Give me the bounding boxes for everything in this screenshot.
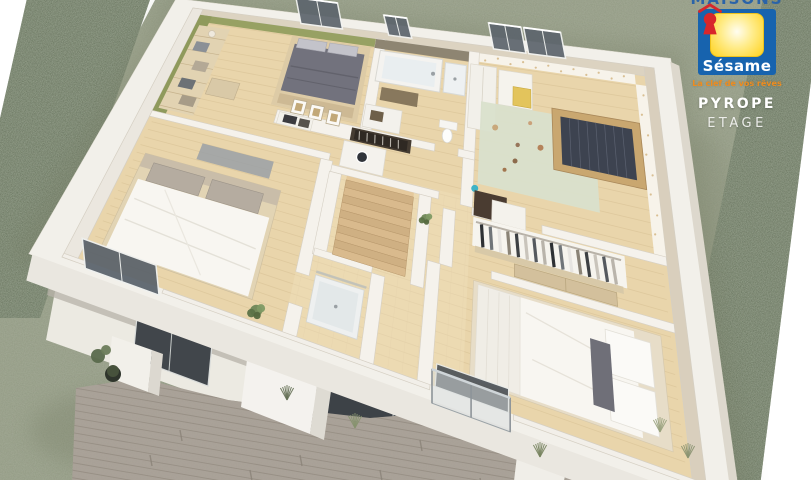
brand-block: MAISONS Sésame La clef de vos rêves PYRO… bbox=[684, 0, 790, 131]
project-name: PYROPE bbox=[684, 96, 790, 112]
floor-label: ETAGE bbox=[684, 116, 790, 131]
sesame-logo: Sésame bbox=[698, 9, 776, 75]
keyhole-icon bbox=[710, 13, 764, 57]
floorplan-render: MAISONS Sésame La clef de vos rêves PYRO… bbox=[0, 0, 811, 480]
brand-tagline: La clef de vos rêves bbox=[684, 79, 790, 88]
logo-name: Sésame bbox=[698, 57, 776, 75]
